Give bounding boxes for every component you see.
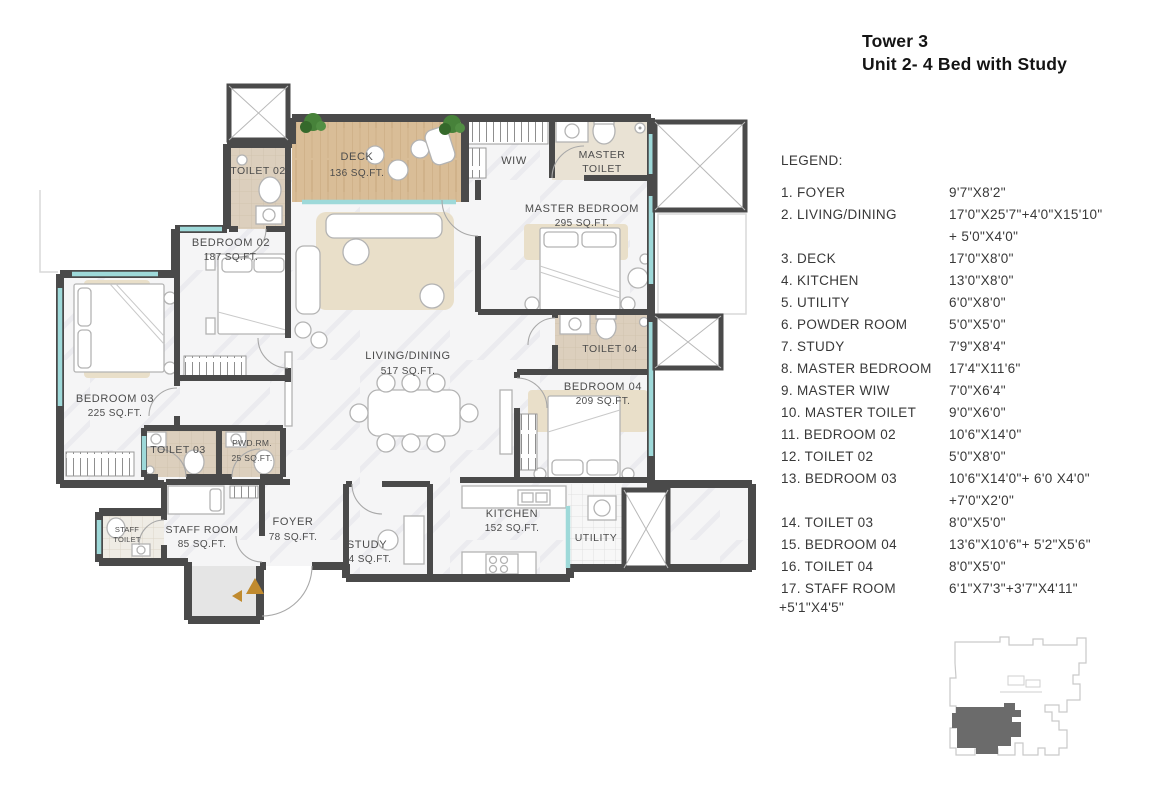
title-tower: Tower 3 [862,30,1067,53]
room-area-deck: 136 SQ.FT. [330,168,385,179]
armchair [343,239,369,265]
legend-item: 17. STAFF ROOM6'1"X7'3"+3'7"X4'11"+5'1"X… [781,578,1170,616]
dining-table [368,390,460,436]
legend-item-label: 4. KITCHEN [781,270,949,292]
legend-item-dimension: 6'1"X7'3"+3'7"X4'11" [949,578,1170,600]
room-label-bedroom03: BEDROOM 03 [76,393,154,405]
legend-heading: LEGEND: [781,153,1170,168]
legend-item-label: 1. FOYER [781,182,949,204]
floor-plan-page: TOILET 02 DECK 136 SQ.FT. WIW MASTER TOI… [0,0,1170,790]
legend-item-label: 14. TOILET 03 [781,512,949,534]
legend-item-dimension: 7'9"X8'4" [949,336,1170,358]
legend-item-dimension: 5'0"X5'0" [949,314,1170,336]
legend-item-dimension: 10'6"X14'0" [949,424,1170,446]
legend-item-label: 16. TOILET 04 [781,556,949,578]
accent-chair [420,284,444,308]
room-area-foyer: 78 SQ.FT. [269,532,318,543]
page-title: Tower 3 Unit 2- 4 Bed with Study [862,30,1067,76]
room-label-toilet04: TOILET 04 [582,343,637,355]
room-label-staff-toilet-2: TOILET [113,535,141,544]
room-label-toilet02: TOILET 02 [230,165,285,177]
legend-item: 3. DECK17'0"X8'0" [781,248,1170,270]
room-label-wiw: WIW [501,155,527,167]
legend-item: 14. TOILET 038'0"X5'0" [781,512,1170,534]
legend-item-dimension: 5'0"X8'0" [949,446,1170,468]
wardrobe-03 [66,452,134,476]
legend: LEGEND: 1. FOYER9'7"X8'2"2. LIVING/DININ… [781,153,1170,616]
legend-item-label: 9. MASTER WIW [781,380,949,402]
room-label-living-dining: LIVING/DINING [365,350,450,362]
legend-item-dimension: 17'4"X11'6" [949,358,1170,380]
legend-rows: 1. FOYER9'7"X8'2"2. LIVING/DINING17'0"X2… [781,182,1170,616]
legend-item-dimension: 17'0"X8'0" [949,248,1170,270]
legend-item-dimension: 8'0"X5'0" [949,512,1170,534]
room-label-bedroom04: BEDROOM 04 [564,381,642,393]
legend-item: 1. FOYER9'7"X8'2" [781,182,1170,204]
room-area-master-bedroom: 295 SQ.FT. [555,218,610,229]
legend-item-dimension: 9'0"X6'0" [949,402,1170,424]
wardrobe-04 [520,414,537,470]
legend-item-label: 3. DECK [781,248,949,270]
legend-item-dimension: 8'0"X5'0" [949,556,1170,578]
room-area-living-dining: 517 SQ.FT. [381,366,436,377]
legend-item: 6. POWDER ROOM5'0"X5'0" [781,314,1170,336]
shower-icon [237,155,247,165]
legend-item-dimension-2: + 5'0"X4'0" [949,226,1170,248]
sofa [326,214,442,238]
legend-item-label: 12. TOILET 02 [781,446,949,468]
room-label-powder-room: PWD.RM. [232,438,272,448]
legend-item: 12. TOILET 025'0"X8'0" [781,446,1170,468]
legend-item-dimension: 17'0"X25'7"+4'0"X15'10" [949,204,1170,226]
study-desk [404,516,424,564]
legend-item-label: 8. MASTER BEDROOM [781,358,949,380]
legend-item-dimension: 10'6"X14'0"+ 6'0 X4'0" [949,468,1170,490]
legend-item: 2. LIVING/DINING17'0"X25'7"+4'0"X15'10"+… [781,204,1170,248]
room-label-utility: UTILITY [575,532,618,544]
key-plan [930,618,1170,778]
wiw-wardrobe [468,120,548,144]
legend-item-label: 5. UTILITY [781,292,949,314]
room-label-staff-room: STAFF ROOM [165,524,238,536]
legend-item-label: 15. BEDROOM 04 [781,534,949,556]
legend-item-label: 10. MASTER TOILET [781,402,949,424]
room-label-deck: DECK [341,151,374,163]
deck-table [388,160,408,180]
room-label-master-toilet: MASTER [579,149,626,161]
room-area-powder-room: 25 SQ.FT. [232,453,273,463]
room-area-bedroom03: 225 SQ.FT. [88,408,143,419]
wc-icon [259,177,281,203]
title-unit: Unit 2- 4 Bed with Study [862,53,1067,76]
room-area-staff-room: 85 SQ.FT. [178,539,227,550]
legend-item: 15. BEDROOM 0413'6"X10'6"+ 5'2"X5'6" [781,534,1170,556]
legend-item: 10. MASTER TOILET9'0"X6'0" [781,402,1170,424]
legend-item: 9. MASTER WIW7'0"X6'4" [781,380,1170,402]
room-label-toilet03: TOILET 03 [150,444,205,456]
room-label-study: STUDY [347,539,387,551]
legend-item-dimension-2: +7'0"X2'0" [949,490,1170,512]
legend-item-dimension: 13'6"X10'6"+ 5'2"X5'6" [949,534,1170,556]
legend-item-label: 7. STUDY [781,336,949,358]
floor-plan-drawing: TOILET 02 DECK 136 SQ.FT. WIW MASTER TOI… [0,0,780,660]
room-label-master-bedroom: MASTER BEDROOM [525,203,639,215]
room-label-master-toilet-2: TOILET [582,163,622,175]
legend-item-dimension: 7'0"X6'4" [949,380,1170,402]
room-area-study: 64 SQ.FT. [343,554,392,565]
legend-item: 8. MASTER BEDROOM17'4"X11'6" [781,358,1170,380]
legend-item-label: 13. BEDROOM 03 [781,468,949,490]
legend-item: 11. BEDROOM 0210'6"X14'0" [781,424,1170,446]
room-label-foyer: FOYER [273,516,314,528]
wardrobe-02 [184,356,246,377]
legend-item-label: 11. BEDROOM 02 [781,424,949,446]
room-area-kitchen: 152 SQ.FT. [485,523,540,534]
side-console [500,390,512,454]
room-label-kitchen: KITCHEN [486,508,538,520]
room-label-staff-toilet: STAFF [115,525,139,534]
legend-item: 7. STUDY7'9"X8'4" [781,336,1170,358]
legend-item-label: 6. POWDER ROOM [781,314,949,336]
legend-item-dimension: 6'0"X8'0" [949,292,1170,314]
room-area-bedroom02: 187 SQ.FT. [204,252,259,263]
legend-item: 16. TOILET 048'0"X5'0" [781,556,1170,578]
legend-item: 4. KITCHEN13'0"X8'0" [781,270,1170,292]
legend-item: 13. BEDROOM 0310'6"X14'0"+ 6'0 X4'0"+7'0… [781,468,1170,512]
tv-console [285,352,292,426]
legend-item-dimension: 13'0"X8'0" [949,270,1170,292]
legend-item-label: 2. LIVING/DINING [781,204,949,226]
legend-item: 5. UTILITY6'0"X8'0" [781,292,1170,314]
legend-item-label-2: +5'1"X4'5" [779,600,949,616]
legend-item-label: 17. STAFF ROOM [781,578,949,600]
legend-item-dimension: 9'7"X8'2" [949,182,1170,204]
room-area-bedroom04: 209 SQ.FT. [576,396,631,407]
room-label-bedroom02: BEDROOM 02 [192,237,270,249]
sofa-side [296,246,320,314]
